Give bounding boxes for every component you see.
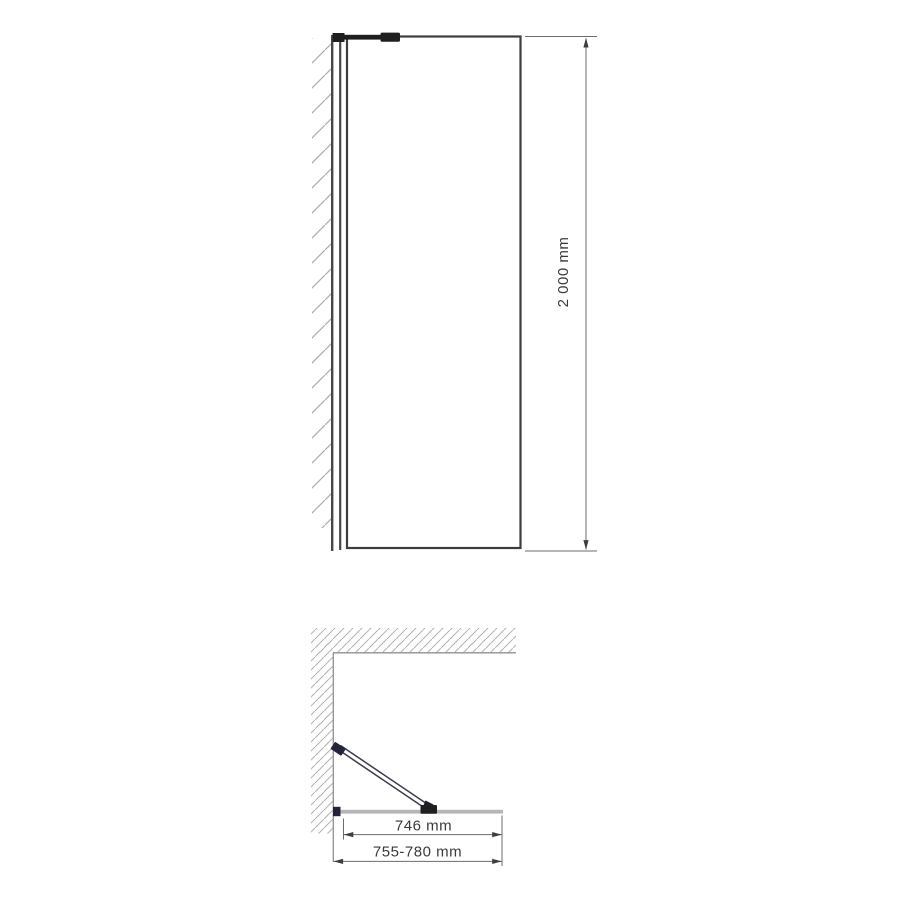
technical-drawing: 2 000 mm 746	[0, 0, 900, 900]
height-arrow-up	[583, 38, 588, 48]
height-label: 2 000 mm	[555, 237, 572, 308]
glass-width-label: 746 mm	[395, 818, 452, 835]
wall-profile-plan	[333, 807, 341, 816]
glass-panel-front	[347, 37, 521, 549]
height-arrow-down	[583, 540, 588, 550]
installation-width-label: 755-780 mm	[373, 844, 462, 861]
support-bar-glass-clamp-front	[381, 33, 401, 42]
installation-width-arrow-right	[492, 859, 502, 864]
glass-width-arrow-left	[344, 832, 354, 837]
installation-width-dimension: 755-780 mm	[333, 844, 502, 865]
support-bar-front	[344, 35, 382, 40]
installation-width-arrow-left	[334, 859, 344, 864]
plan-side-wall-hatch	[311, 653, 333, 834]
glass-panel-plan	[333, 810, 503, 814]
front-wall-hatch	[312, 38, 332, 528]
support-bar-plan-edge-1	[341, 746, 431, 807]
support-bar-glass-clamp-plan	[421, 805, 438, 814]
height-dimension: 2 000 mm	[525, 37, 597, 552]
drawing-canvas: 2 000 mm 746	[0, 0, 900, 900]
front-view	[312, 33, 521, 551]
glass-width-arrow-right	[492, 832, 502, 837]
plan-back-wall-hatch	[311, 628, 516, 653]
support-bar-plan-edge-2	[338, 749, 428, 810]
support-bar-wall-mount-front	[333, 33, 345, 42]
